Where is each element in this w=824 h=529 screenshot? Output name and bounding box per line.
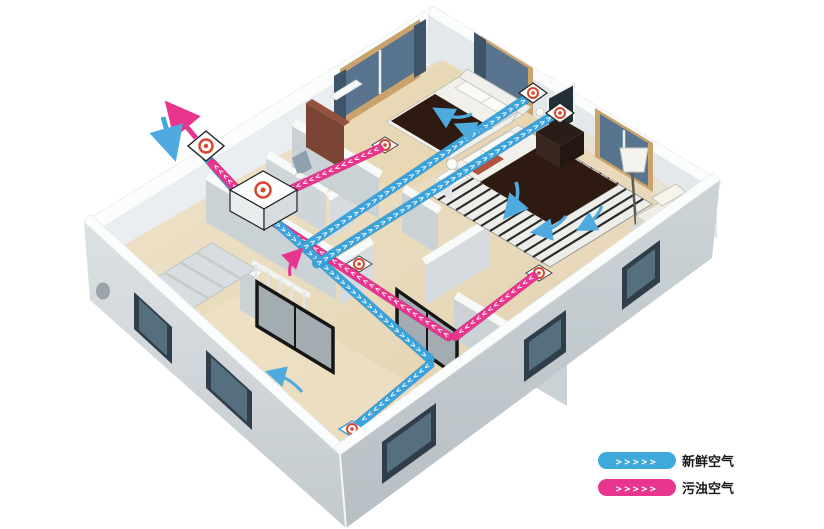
dresser-lamp bbox=[536, 108, 544, 116]
legend-fresh-air: >>>>> 新鲜空气 bbox=[598, 452, 734, 470]
legend-label-exhaust: 污浊空气 bbox=[682, 481, 734, 497]
curtain-right bbox=[414, 19, 426, 78]
legend-chevrons-fresh: >>>>> bbox=[616, 457, 659, 468]
exhaust-out-arrow bbox=[176, 114, 196, 138]
legend-chevrons-exhaust: >>>>> bbox=[616, 484, 659, 495]
unit-fan-dot bbox=[261, 188, 266, 193]
table-lamp bbox=[447, 159, 458, 170]
fresh-in-arrow bbox=[163, 117, 171, 145]
isometric-house-scene: >>>>>>>>>>>>>>>>>>>>>>>>>>>> >>>>>>>>>>>… bbox=[0, 0, 824, 529]
legend-label-fresh: 新鲜空气 bbox=[682, 454, 734, 470]
legend-exhaust-air: >>>>> 污浊空气 bbox=[598, 479, 734, 497]
sink bbox=[295, 173, 305, 179]
duct-wall-hole bbox=[96, 283, 110, 300]
floor-lamp-shade bbox=[620, 148, 648, 172]
ventilation-diagram: >>>>>>>>>>>>>>>>>>>>>>>>>>>> >>>>>>>>>>>… bbox=[0, 0, 824, 529]
legend: >>>>> 新鲜空气 >>>>> 污浊空气 bbox=[598, 452, 734, 497]
